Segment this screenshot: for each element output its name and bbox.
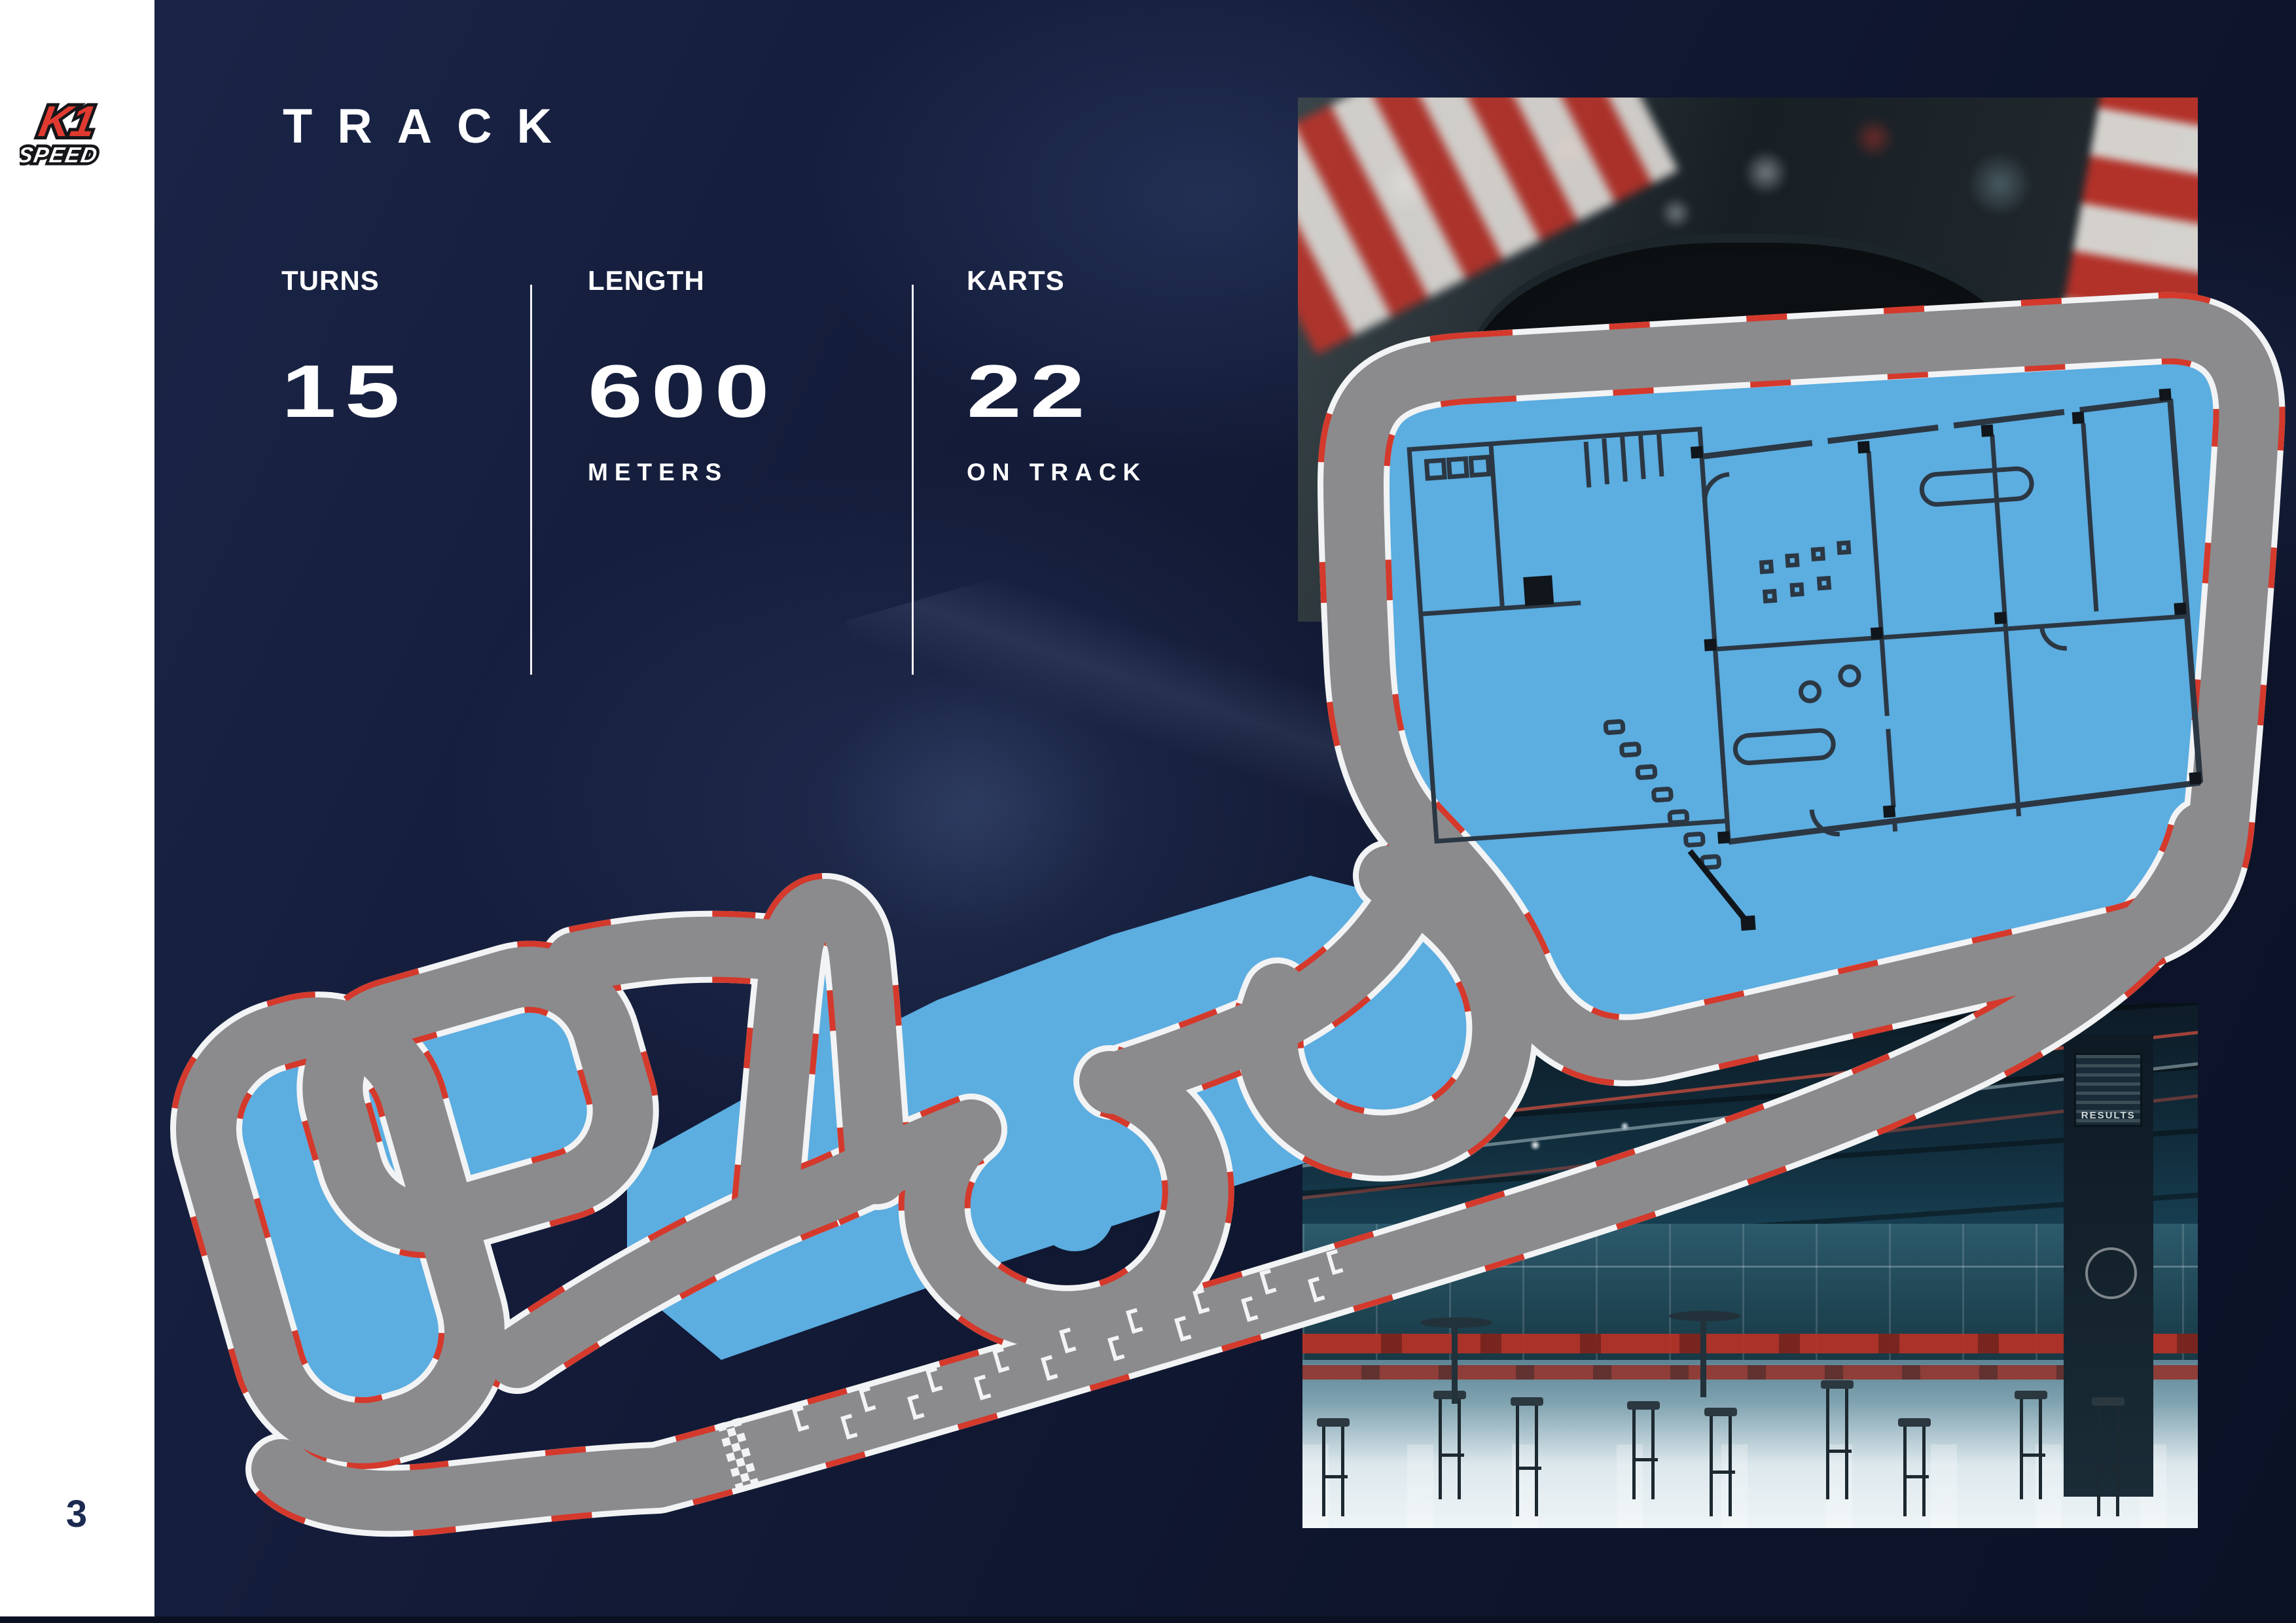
- stat-turns: TURNS 15: [281, 265, 380, 296]
- stat-label: KARTS: [967, 265, 1065, 296]
- stat-value: 600: [588, 349, 778, 435]
- k1-speed-logo-icon: K1 SPEED: [20, 96, 135, 169]
- track-map: [0, 0, 2296, 1623]
- brochure-page: K1SPEED RESULTS: [0, 0, 2296, 1623]
- stat-value: 22: [967, 349, 1094, 435]
- logo-speed-text: SPEED: [20, 143, 100, 168]
- stat-label: LENGTH: [588, 265, 705, 296]
- stat-length: LENGTH 600 METERS: [588, 265, 705, 296]
- stat-value: 15: [281, 349, 408, 435]
- sidebar: K1 SPEED 3: [0, 0, 154, 1616]
- stat-divider: [530, 285, 532, 675]
- stat-divider: [912, 285, 914, 675]
- stat-label: TURNS: [281, 265, 380, 296]
- page-number: 3: [0, 1492, 154, 1536]
- page-bottom-strip: [0, 1616, 2296, 1623]
- stat-karts: KARTS 22 ON TRACK: [967, 265, 1065, 296]
- stat-sub: ON TRACK: [967, 459, 1147, 486]
- stat-sub: METERS: [588, 459, 728, 486]
- page-title: TRACK: [283, 98, 577, 154]
- logo-k1-text: K1: [35, 98, 99, 145]
